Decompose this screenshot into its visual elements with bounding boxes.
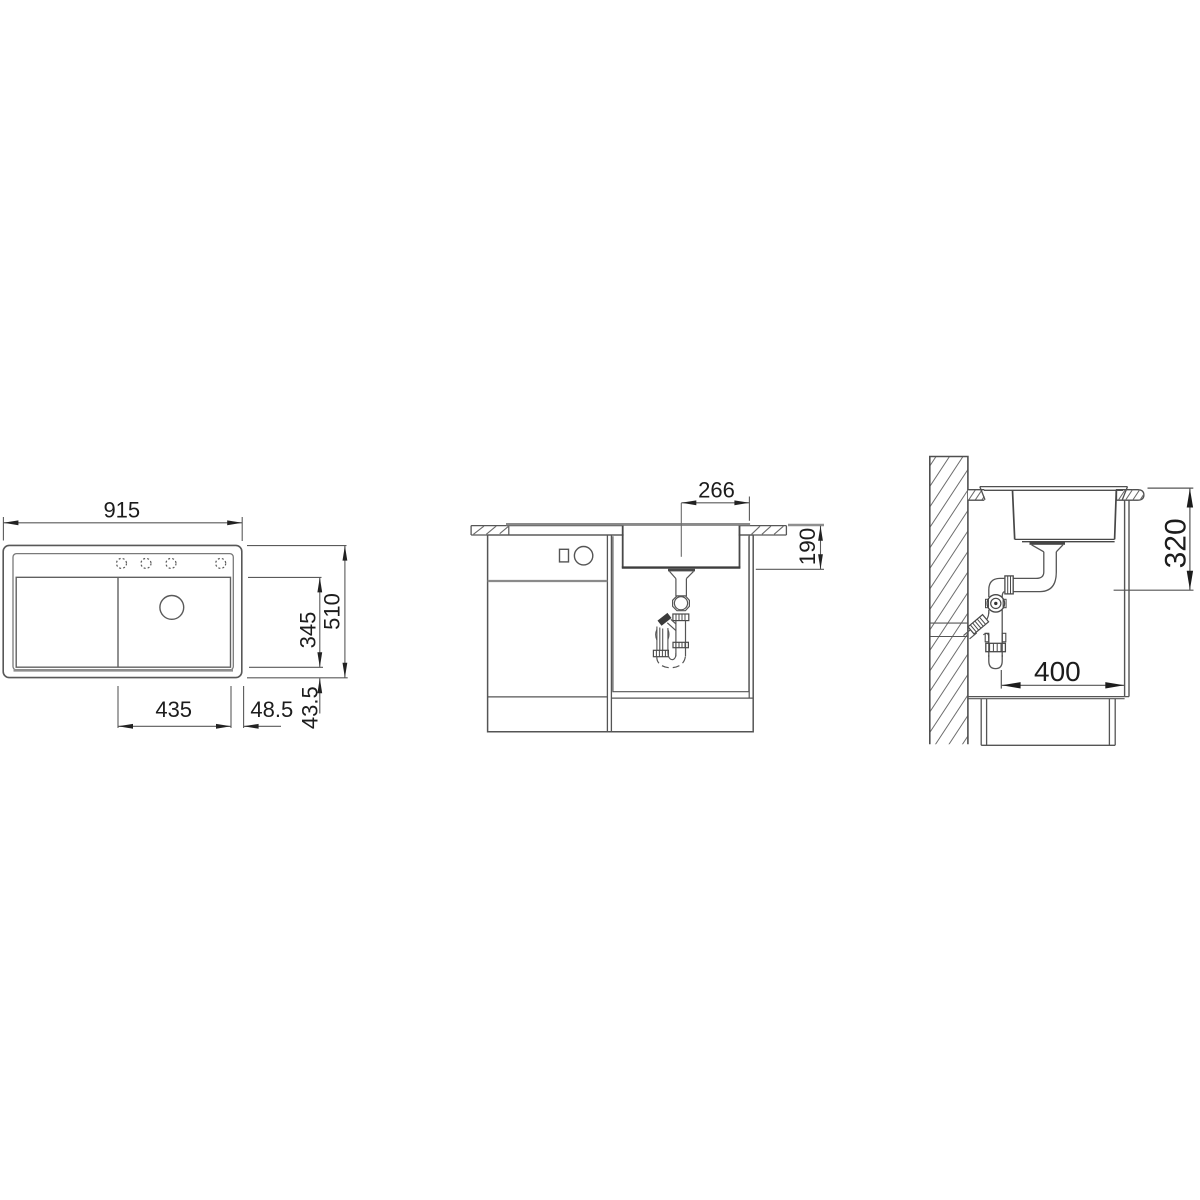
svg-text:43.5: 43.5	[298, 686, 323, 729]
svg-text:48.5: 48.5	[250, 697, 293, 722]
svg-text:190: 190	[795, 528, 820, 566]
svg-text:915: 915	[103, 497, 140, 522]
svg-text:320: 320	[1160, 518, 1193, 568]
svg-text:266: 266	[698, 478, 735, 503]
svg-text:435: 435	[155, 697, 192, 722]
svg-text:510: 510	[320, 593, 345, 630]
svg-text:345: 345	[296, 612, 321, 649]
svg-text:400: 400	[1034, 656, 1081, 687]
